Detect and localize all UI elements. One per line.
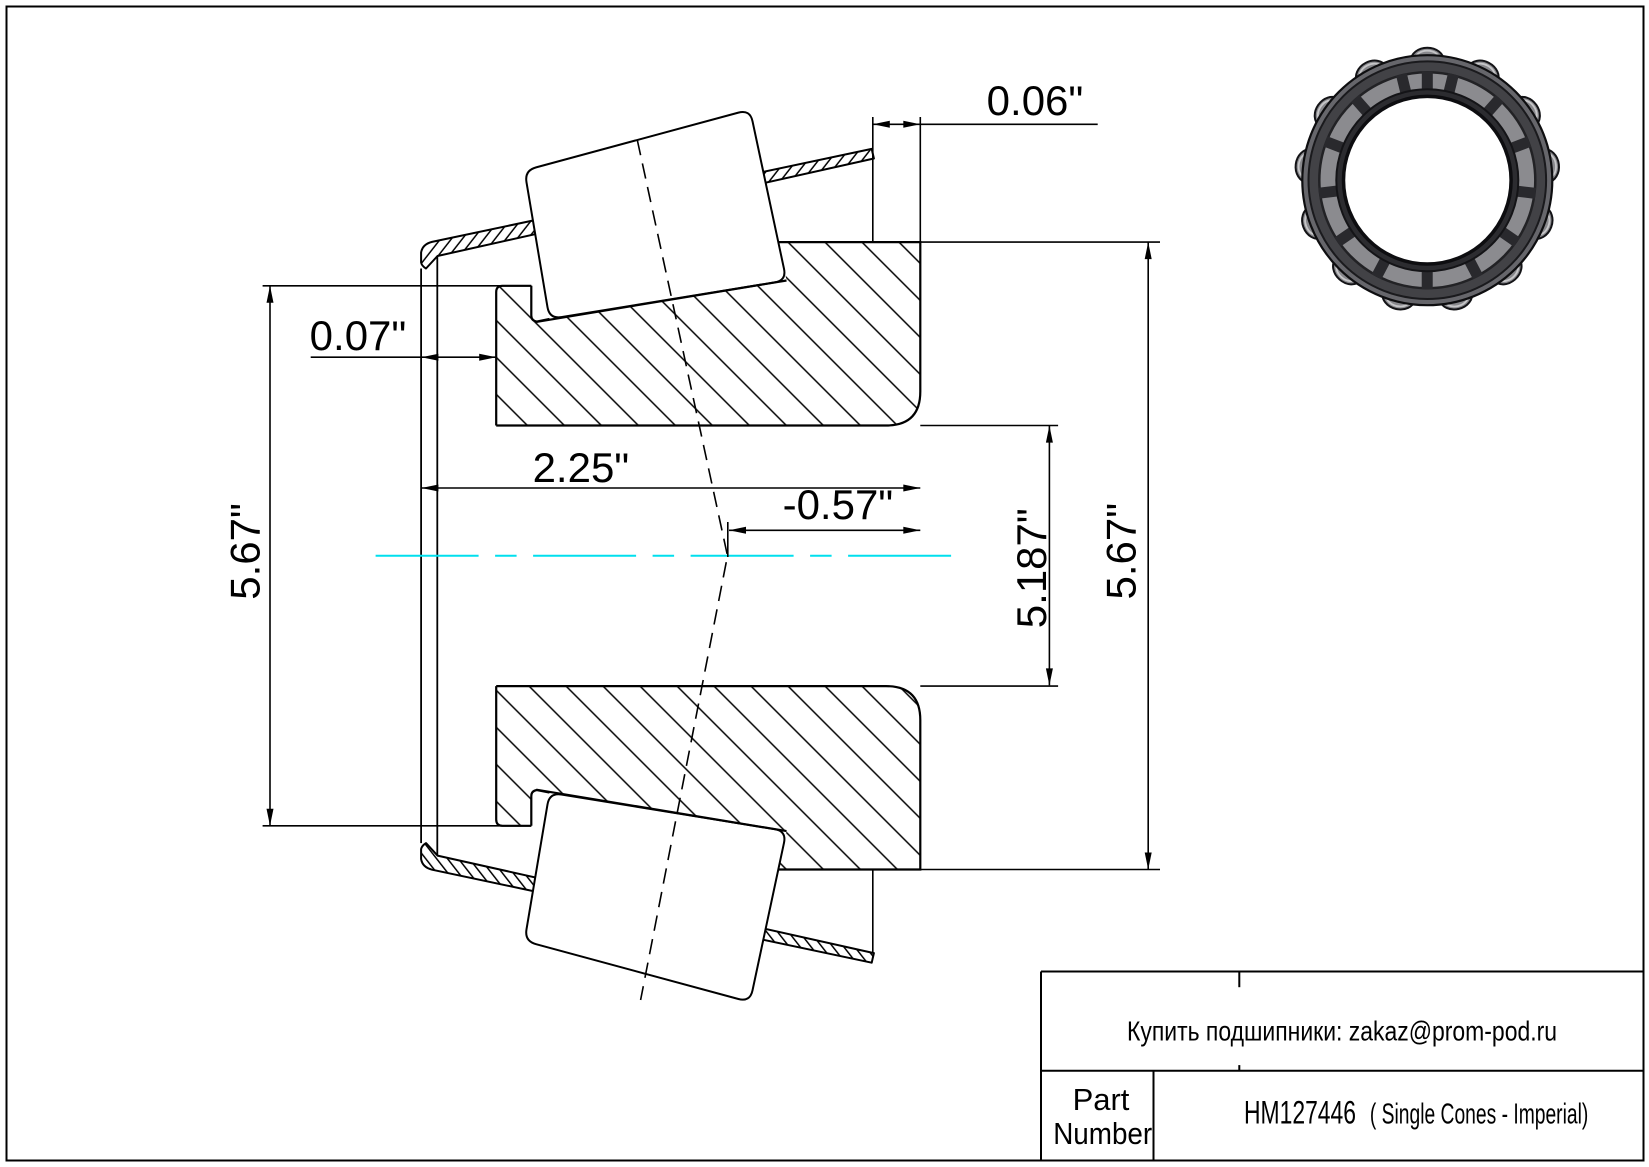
svg-text:Part: Part xyxy=(1073,1082,1130,1117)
svg-text:0.07": 0.07" xyxy=(310,312,407,359)
svg-text:2.25": 2.25" xyxy=(533,444,630,491)
svg-text:5.67": 5.67" xyxy=(221,503,268,600)
svg-text:5.67": 5.67" xyxy=(1098,503,1145,600)
svg-text:5.187": 5.187" xyxy=(1008,508,1055,628)
svg-text:-0.57": -0.57" xyxy=(783,481,894,528)
svg-text:Number: Number xyxy=(1053,1116,1152,1151)
svg-text:HM127446: HM127446 xyxy=(1244,1095,1356,1131)
svg-text:Купить подшипники: zakaz@prom-: Купить подшипники: zakaz@prom-pod.ru xyxy=(1127,1016,1557,1047)
svg-text:( Single Cones - Imperial): ( Single Cones - Imperial) xyxy=(1370,1099,1588,1131)
svg-text:0.06": 0.06" xyxy=(987,77,1084,124)
